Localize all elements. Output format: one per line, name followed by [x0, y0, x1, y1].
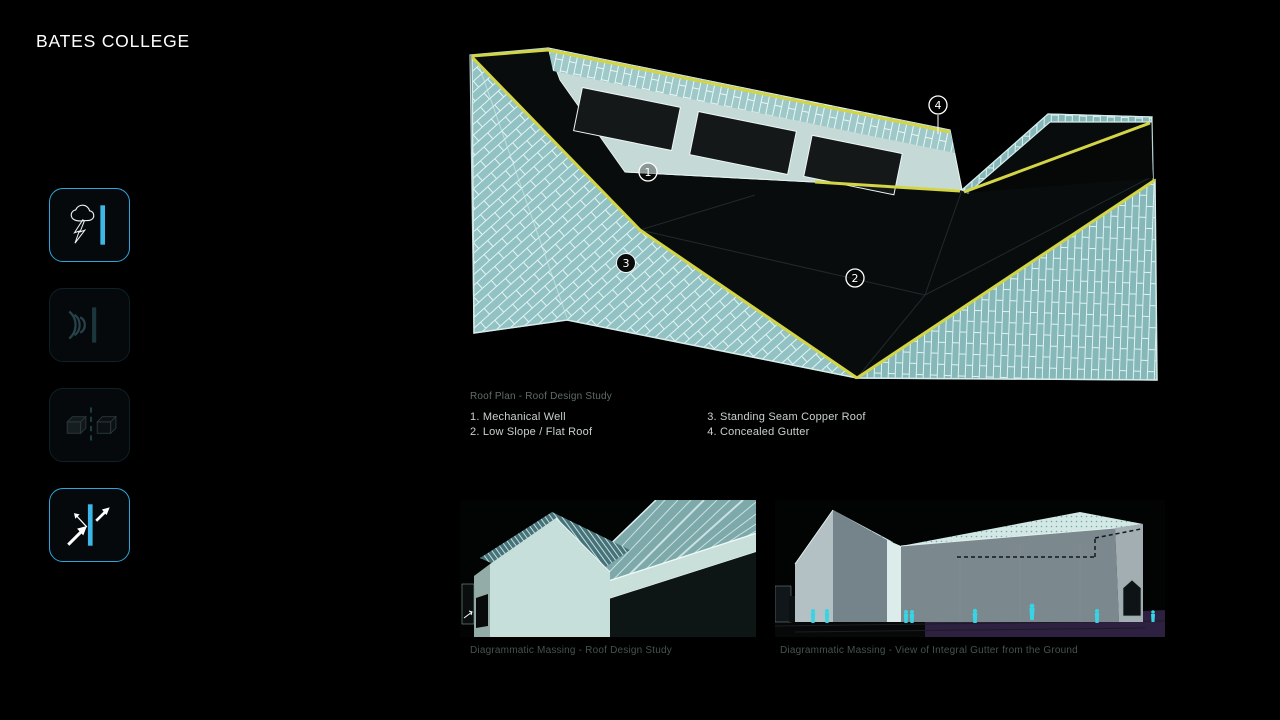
- sidebar-item-massing[interactable]: [49, 388, 130, 462]
- massing-cubes-icon: [61, 400, 119, 450]
- reflection-arrows-icon: [61, 500, 119, 550]
- sidebar-item-sound[interactable]: [49, 288, 130, 362]
- slide: BATES COLLEGE: [0, 0, 1280, 720]
- page-title: BATES COLLEGE: [36, 31, 190, 52]
- legend-item-4: 4. Concealed Gutter: [707, 426, 865, 440]
- legend-item-1: 1. Mechanical Well: [470, 411, 592, 425]
- sound-waves-icon: [61, 300, 119, 350]
- storm-lightning-icon: [61, 200, 119, 250]
- massing-roof-study-figure: [460, 500, 756, 637]
- callout-1: 1: [645, 166, 652, 179]
- roof-plan-caption: Roof Plan - Roof Design Study: [470, 391, 612, 402]
- callout-2: 2: [852, 272, 859, 285]
- massing-gutter-view-figure: [775, 500, 1165, 637]
- roof-plan-legend: 1. Mechanical Well 2. Low Slope / Flat R…: [470, 411, 866, 439]
- callout-4: 4: [935, 99, 942, 112]
- massing-left-caption: Diagrammatic Massing - Roof Design Study: [470, 645, 672, 656]
- legend-item-2: 2. Low Slope / Flat Roof: [470, 426, 592, 440]
- sidebar-item-storm[interactable]: [49, 188, 130, 262]
- massing-right-caption: Diagrammatic Massing - View of Integral …: [780, 645, 1078, 656]
- sidebar-item-reflection[interactable]: [49, 488, 130, 562]
- callout-3: 3: [623, 257, 630, 270]
- roof-plan-figure: 1 2 3 4: [465, 45, 1160, 387]
- legend-item-3: 3. Standing Seam Copper Roof: [707, 411, 865, 425]
